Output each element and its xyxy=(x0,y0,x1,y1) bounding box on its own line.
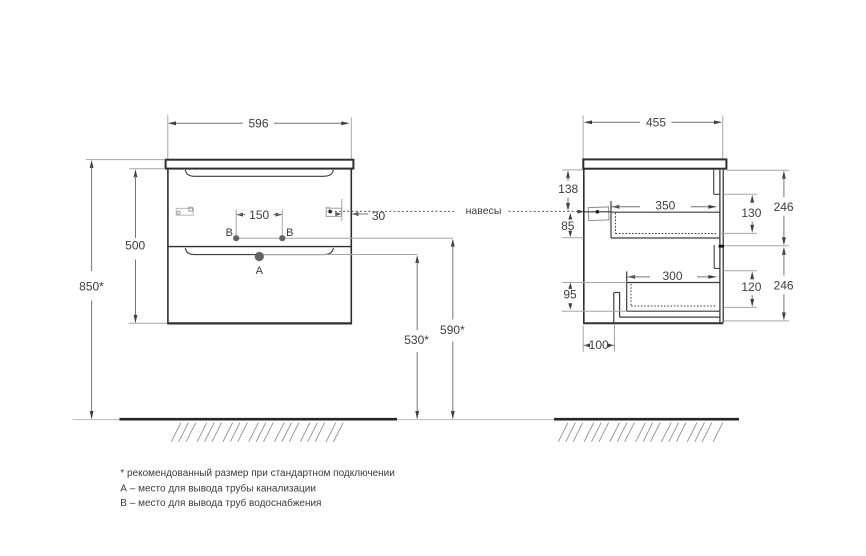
svg-text:500: 500 xyxy=(125,238,145,252)
svg-text:850*: 850* xyxy=(79,280,104,294)
svg-text:120: 120 xyxy=(741,280,761,294)
svg-text:455: 455 xyxy=(646,116,666,130)
svg-text:30: 30 xyxy=(372,209,386,223)
svg-text:530*: 530* xyxy=(404,333,429,347)
svg-text:350: 350 xyxy=(655,199,675,213)
svg-text:100: 100 xyxy=(589,338,609,352)
svg-text:130: 130 xyxy=(741,206,761,220)
svg-text:А – место для вывода трубы кан: А – место для вывода трубы канализации xyxy=(120,483,316,495)
svg-text:B: B xyxy=(226,227,233,239)
svg-text:590*: 590* xyxy=(440,323,465,337)
svg-text:B: B xyxy=(286,227,293,239)
svg-text:95: 95 xyxy=(563,288,577,302)
svg-text:* рекомендованный размер при с: * рекомендованный размер при стандартном… xyxy=(120,468,395,479)
svg-text:150: 150 xyxy=(249,208,269,222)
svg-text:246: 246 xyxy=(774,200,794,214)
svg-text:A: A xyxy=(256,265,264,277)
svg-text:85: 85 xyxy=(561,219,575,233)
svg-text:300: 300 xyxy=(662,269,682,283)
svg-text:В – место для вывода труб водо: В – место для вывода труб водоснабжения xyxy=(120,497,321,509)
svg-text:навесы: навесы xyxy=(466,205,502,217)
svg-text:138: 138 xyxy=(558,182,578,196)
svg-text:596: 596 xyxy=(248,116,268,130)
svg-text:246: 246 xyxy=(774,279,794,293)
